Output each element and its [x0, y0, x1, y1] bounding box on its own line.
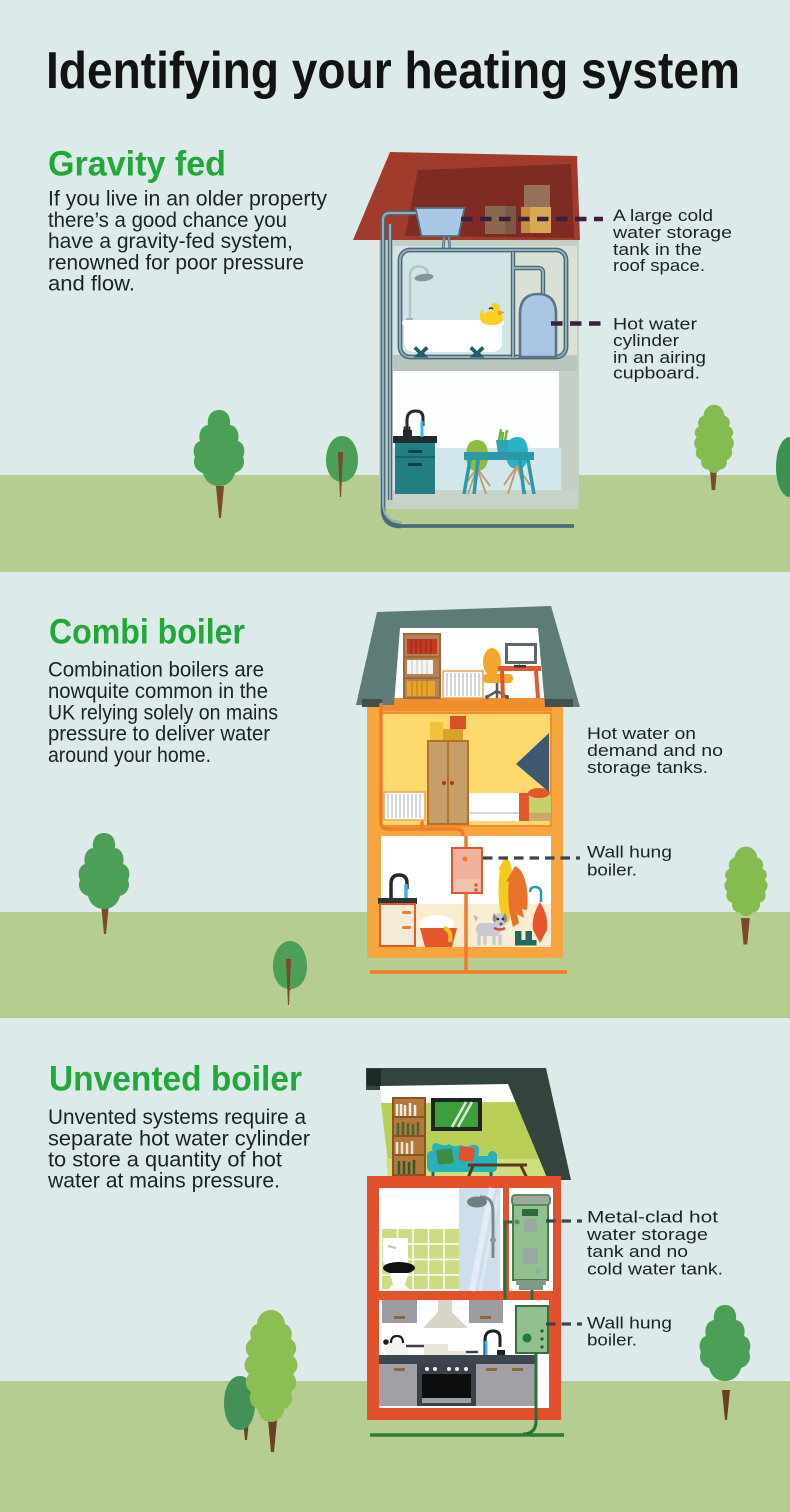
svg-text:A large cold: A large cold	[613, 207, 713, 225]
svg-text:roof space.: roof space.	[613, 257, 705, 275]
svg-text:Identifying your heating syste: Identifying your heating system	[46, 42, 740, 100]
svg-text:separate hot water cylinder: separate hot water cylinder	[48, 1127, 310, 1150]
svg-text:Hot water: Hot water	[613, 315, 698, 333]
svg-text:water storage: water storage	[586, 1226, 708, 1244]
svg-text:water at mains pressure.: water at mains pressure.	[47, 1170, 280, 1193]
svg-text:boiler.: boiler.	[587, 1331, 637, 1349]
svg-text:there’s a good chance you: there’s a good chance you	[48, 209, 287, 232]
svg-text:Hot water on: Hot water on	[587, 725, 696, 743]
svg-text:Metal-clad hot: Metal-clad hot	[587, 1209, 719, 1227]
svg-text:storage tanks.: storage tanks.	[587, 759, 708, 777]
svg-text:pressure to deliver water: pressure to deliver water	[48, 723, 270, 746]
svg-text:cupboard.: cupboard.	[613, 364, 700, 382]
svg-text:and flow.: and flow.	[48, 273, 135, 296]
svg-text:nowquite common in the: nowquite common in the	[48, 680, 268, 703]
svg-text:If you live in an older proper: If you live in an older property	[48, 188, 328, 211]
svg-text:around your home.: around your home.	[48, 744, 211, 767]
svg-text:Wall hung: Wall hung	[587, 844, 672, 862]
svg-text:water storage: water storage	[612, 224, 732, 242]
svg-text:have a gravity-fed system,: have a gravity-fed system,	[48, 230, 293, 253]
svg-text:Unvented boiler: Unvented boiler	[49, 1060, 302, 1099]
svg-text:demand and no: demand and no	[587, 742, 723, 760]
svg-text:cylinder: cylinder	[613, 332, 680, 350]
svg-text:to store a quantity of hot: to store a quantity of hot	[48, 1148, 282, 1171]
svg-text:Gravity fed: Gravity fed	[48, 145, 226, 184]
svg-text:Combi boiler: Combi boiler	[49, 613, 245, 652]
svg-text:Combination boilers are: Combination boilers are	[48, 659, 264, 682]
svg-text:boiler.: boiler.	[587, 861, 637, 879]
svg-text:Unvented systems require a: Unvented systems require a	[48, 1106, 306, 1129]
svg-text:cold water tank.: cold water tank.	[587, 1260, 723, 1278]
svg-text:Wall hung: Wall hung	[587, 1314, 672, 1332]
svg-text:tank and no: tank and no	[587, 1243, 688, 1261]
svg-text:UK relying solely on mains: UK relying solely on mains	[48, 702, 278, 725]
svg-text:renowned for poor pressure: renowned for poor pressure	[48, 252, 304, 275]
